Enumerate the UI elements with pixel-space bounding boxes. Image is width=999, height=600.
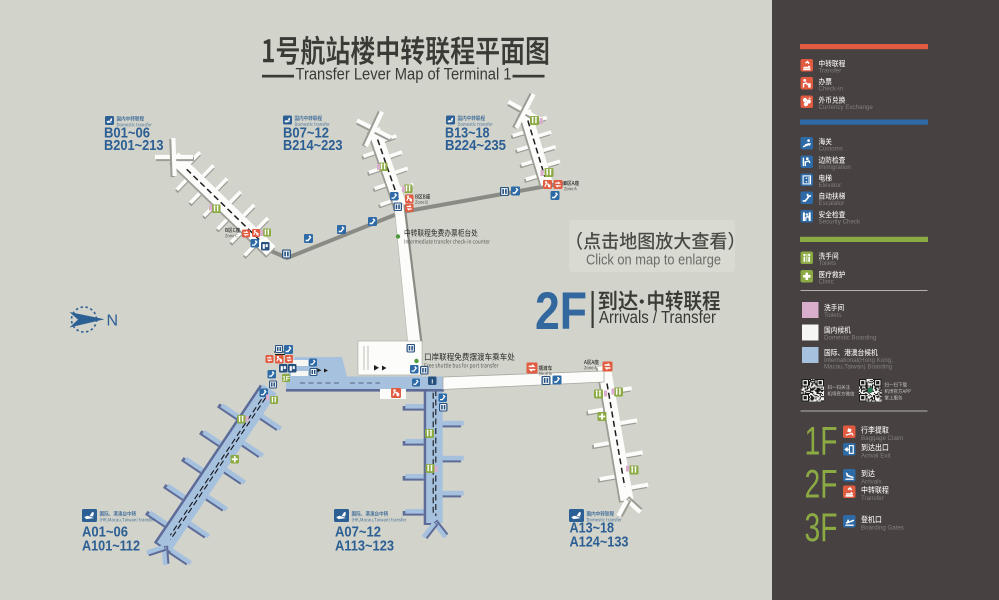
svg-text:1F: 1F (805, 420, 838, 464)
svg-text:Toilets: Toilets (819, 260, 837, 267)
svg-text:2F: 2F (535, 282, 587, 341)
svg-text:Elevator: Elevator (819, 182, 842, 189)
svg-text:Boarding Gates: Boarding Gates (861, 524, 904, 531)
svg-text:Clinic: Clinic (819, 279, 834, 286)
svg-text:Arrivals: Arrivals (861, 478, 882, 485)
svg-text:B224~235: B224~235 (445, 137, 506, 154)
svg-text:N: N (107, 313, 119, 330)
svg-text:Arrival Exit: Arrival Exit (861, 452, 891, 459)
svg-text:Customs: Customs (819, 146, 843, 153)
svg-text:Click on map to enlarge: Click on map to enlarge (586, 252, 721, 268)
svg-text:Domestic Boarding: Domestic Boarding (824, 334, 877, 341)
svg-text:i: i (431, 378, 433, 385)
svg-text:Baggage Claim: Baggage Claim (861, 435, 903, 442)
svg-text:A124~133: A124~133 (570, 534, 629, 551)
svg-text:B214~223: B214~223 (283, 137, 343, 154)
svg-text:A113~123: A113~123 (335, 538, 394, 555)
svg-text:Security Check: Security Check (819, 219, 862, 226)
svg-text:Toilets: Toilets (824, 312, 842, 319)
svg-text:3F: 3F (805, 506, 838, 550)
svg-text:B201~213: B201~213 (104, 137, 164, 154)
svg-text:Escalator: Escalator (819, 200, 845, 207)
svg-text:1F: 1F (282, 376, 290, 383)
svg-text:Transfer: Transfer (819, 68, 842, 75)
svg-text:2F: 2F (805, 463, 838, 507)
svg-text:Currency Exchange: Currency Exchange (819, 104, 874, 111)
svg-text:Transfer: Transfer (861, 495, 884, 502)
svg-text:Transfer Lever Map of Terminal: Transfer Lever Map of Terminal 1 (296, 65, 512, 84)
svg-text:Check-in: Check-in (819, 86, 844, 93)
svg-text:Arrivals / Transfer: Arrivals / Transfer (599, 307, 716, 327)
svg-text:Macau,Taiwan) Boarding: Macau,Taiwan) Boarding (824, 363, 893, 370)
svg-text:Immigration: Immigration (819, 164, 852, 171)
svg-text:A101~112: A101~112 (82, 538, 140, 555)
